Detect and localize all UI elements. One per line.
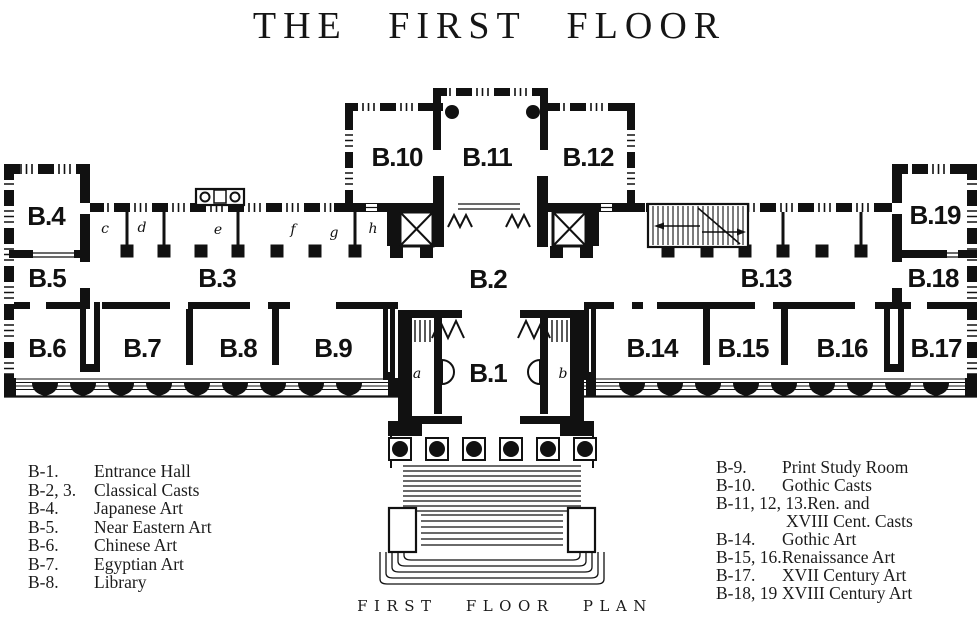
portico [389,436,596,468]
legend-entry-wrap: XVIII Cent. Casts [716,512,913,530]
room-label-b14: B.14 [627,333,679,363]
legend-entry: B-5.Near Eastern Art [28,518,212,537]
legend-room-name: Classical Casts [94,480,199,500]
legend-entry: B-7.Egyptian Art [28,555,212,574]
legend-entry: B-2, 3.Classical Casts [28,481,212,500]
bay-letter-f: f [289,222,298,238]
legend-room-name: Ren. and [807,493,869,513]
bay-letter-h: h [368,221,377,237]
legend-entry: B-9.Print Study Room [716,458,913,476]
legend-entry: B-14.Gothic Art [716,530,913,548]
room-label-b2: B.2 [469,264,507,294]
bay-letter-c: c [101,221,109,237]
legend-entry: B-11, 12, 13.Ren. and [716,494,913,512]
exedra-bay [196,189,244,205]
legend-code: B-15, 16. [716,548,782,566]
room-labels: B.4 B.5 B.6 B.7 B.8 B.9 B.3 B.2 B.1 B.10… [27,142,962,388]
room-label-b18: B.18 [908,263,959,293]
legend-code: B-17. [716,566,782,584]
gallery-columns [121,245,868,258]
bay-letter-g: g [330,225,339,241]
bay-letter-b: b [559,366,568,382]
scanned-floor-plan-page: THE FIRST FLOOR [0,0,979,624]
legend-room-name: XVIII Century Art [782,583,912,603]
legend-room-name: Library [94,572,146,592]
room-label-b17: B.17 [911,333,962,363]
legend-left: B-1.Entrance Hall B-2, 3.Classical Casts… [28,462,212,592]
room-label-b13: B.13 [741,263,792,293]
room-label-b4: B.4 [27,201,66,231]
legend-entry: B-15, 16.Renaissance Art [716,548,913,566]
legend-entry: B-1.Entrance Hall [28,462,212,481]
legend-room-name: Chinese Art [94,535,177,555]
legend-code: B-5. [28,518,94,537]
bay-letter-d: d [138,220,147,236]
legend-entry: B-4.Japanese Art [28,499,212,518]
legend-code: B-14. [716,530,782,548]
room-label-b7: B.7 [123,333,161,363]
legend-entry: B-8.Library [28,573,212,592]
legend-room-name: Gothic Casts [782,475,872,495]
plan-caption: FIRST FLOOR PLAN [357,597,653,615]
legend-code: B-11, 12, 13. [716,494,807,512]
legend-code: B-1. [28,462,94,481]
legend-room-name: Print Study Room [782,457,908,477]
bay-letter-e: e [214,222,222,238]
legend-code: B-10. [716,476,782,494]
legend-room-name: Renaissance Art [782,547,895,567]
legend-entry: B-6.Chinese Art [28,536,212,555]
room-label-b5: B.5 [28,263,66,293]
room-label-b6: B.6 [28,333,66,363]
light-shafts [387,212,599,258]
legend-entry: B-10.Gothic Casts [716,476,913,494]
legend-entry: B-17.XVII Century Art [716,566,913,584]
legend-right: B-9.Print Study Room B-10.Gothic Casts B… [716,458,913,602]
room-label-b9: B.9 [314,333,352,363]
legend-room-name: Egyptian Art [94,554,184,574]
legend-code: B-18, 19 [716,584,782,602]
legend-room-name: Gothic Art [782,529,856,549]
legend-code: B-9. [716,458,782,476]
wall-screens [126,212,863,245]
room-label-b12: B.12 [563,142,614,172]
room-label-b19: B.19 [910,200,961,230]
legend-code: B-4. [28,499,94,518]
legend-room-name: Near Eastern Art [94,517,212,537]
room-label-b11: B.11 [462,142,512,172]
legend-room-name: XVII Century Art [782,565,906,585]
legend-code: B-7. [28,555,94,574]
legend-room-name: Japanese Art [94,498,183,518]
room-label-b8: B.8 [219,333,257,363]
legend-code: B-8. [28,573,94,592]
bay-letter-a: a [413,366,421,382]
room-label-b15: B.15 [718,333,769,363]
room-label-b1: B.1 [469,358,507,388]
room-label-b3: B.3 [198,263,236,293]
round-columns [445,105,540,119]
legend-code: B-2, 3. [28,481,94,500]
legend-code: B-6. [28,536,94,555]
room-label-b16: B.16 [817,333,868,363]
legend-entry: B-18, 19XVIII Century Art [716,584,913,602]
room-label-b10: B.10 [372,142,423,172]
staircase [648,204,748,247]
legend-room-name: Entrance Hall [94,461,191,481]
legend-room-name: XVIII Cent. Casts [782,511,913,531]
entrance-steps [380,466,604,584]
